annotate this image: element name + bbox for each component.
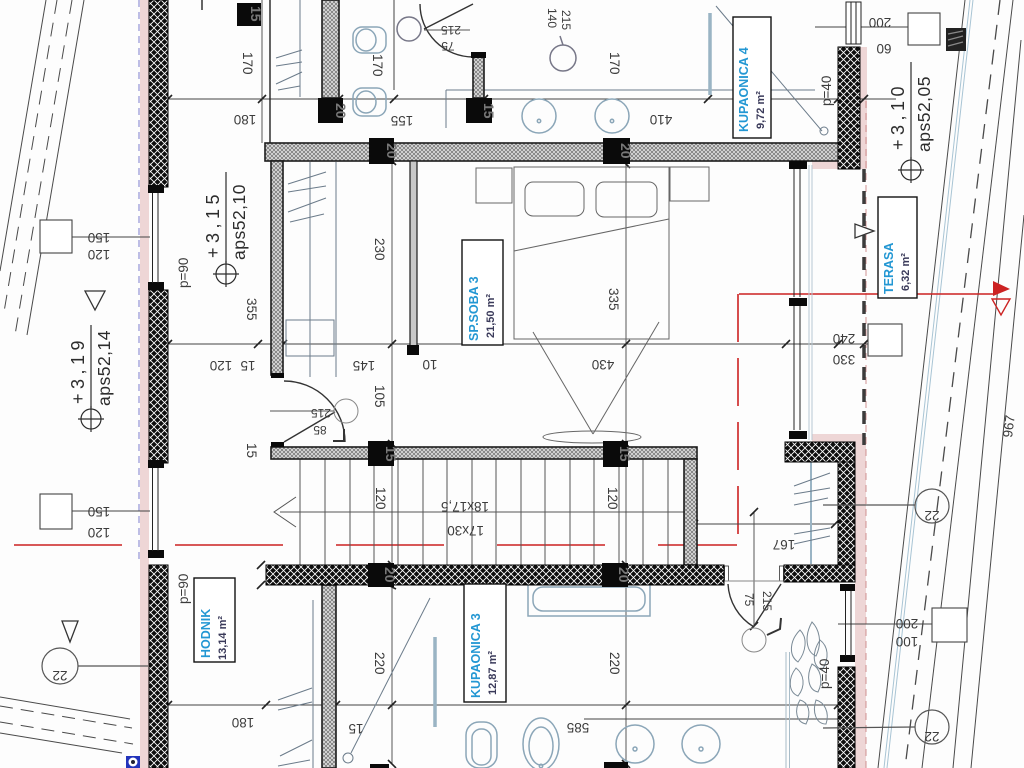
svg-text:15: 15	[383, 446, 399, 462]
svg-text:215: 215	[760, 591, 774, 611]
svg-text:KUPAONICA 3: KUPAONICA 3	[469, 613, 483, 698]
svg-text:410: 410	[650, 112, 673, 127]
svg-text:120: 120	[88, 525, 111, 540]
svg-text:SP.SOBA 3: SP.SOBA 3	[467, 276, 481, 341]
svg-text:335: 335	[606, 288, 621, 311]
svg-text:215: 215	[441, 23, 461, 37]
svg-text:18x17,5: 18x17,5	[441, 499, 489, 514]
svg-text:HODNIK: HODNIK	[199, 609, 213, 658]
svg-text:aps52,14: aps52,14	[94, 330, 114, 406]
svg-text:75: 75	[742, 593, 756, 607]
svg-text:15: 15	[481, 103, 497, 119]
svg-text:180: 180	[234, 112, 257, 127]
svg-text:12,87 m²: 12,87 m²	[487, 651, 499, 695]
svg-text:15: 15	[617, 446, 633, 462]
svg-text:15: 15	[348, 721, 363, 736]
svg-text:22: 22	[924, 508, 939, 523]
svg-text:105: 105	[372, 385, 387, 408]
svg-text:120: 120	[88, 247, 111, 262]
svg-text:+3,19: +3,19	[68, 336, 88, 404]
svg-text:100: 100	[896, 634, 919, 649]
svg-text:170: 170	[240, 52, 255, 75]
svg-text:20: 20	[382, 567, 398, 583]
svg-text:9,72 m²: 9,72 m²	[755, 91, 767, 129]
svg-text:85: 85	[313, 423, 327, 437]
svg-text:p=40: p=40	[817, 659, 832, 689]
svg-text:aps52,05: aps52,05	[914, 76, 934, 152]
svg-text:13,14 m²: 13,14 m²	[217, 616, 229, 660]
svg-text:150: 150	[88, 504, 111, 519]
svg-text:10: 10	[422, 357, 437, 372]
svg-text:170: 170	[370, 54, 385, 77]
svg-text:220: 220	[372, 652, 387, 675]
svg-text:200: 200	[896, 616, 919, 631]
svg-text:355: 355	[244, 298, 259, 321]
svg-text:21,50 m²: 21,50 m²	[485, 294, 497, 338]
svg-text:60: 60	[876, 41, 891, 56]
svg-text:20: 20	[333, 103, 349, 119]
svg-text:p=40: p=40	[819, 76, 834, 106]
svg-text:585: 585	[567, 720, 590, 735]
svg-text:330: 330	[833, 352, 856, 367]
svg-text:20: 20	[618, 143, 634, 159]
svg-text:230: 230	[372, 238, 387, 261]
svg-text:15: 15	[248, 6, 264, 22]
svg-text:aps52,10: aps52,10	[229, 184, 249, 260]
svg-text:6,32 m²: 6,32 m²	[900, 253, 912, 291]
svg-text:215: 215	[311, 406, 331, 420]
svg-text:p=90: p=90	[176, 574, 191, 604]
svg-text:430: 430	[592, 357, 615, 372]
svg-text:20: 20	[384, 143, 400, 159]
svg-text:170: 170	[607, 52, 622, 75]
svg-text:20: 20	[616, 567, 632, 583]
svg-text:150: 150	[88, 230, 111, 245]
svg-text:155: 155	[391, 113, 414, 128]
svg-text:180: 180	[232, 715, 255, 730]
svg-text:240: 240	[833, 331, 856, 346]
svg-text:75: 75	[441, 39, 455, 53]
svg-text:145: 145	[353, 358, 376, 373]
svg-text:140: 140	[545, 8, 559, 28]
svg-text:220: 220	[607, 652, 622, 675]
svg-text:p=90: p=90	[176, 258, 191, 288]
svg-text:KUPAONICA 4: KUPAONICA 4	[737, 47, 751, 132]
svg-text:120: 120	[210, 358, 233, 373]
svg-text:+3,10: +3,10	[888, 82, 908, 150]
svg-text:15: 15	[240, 358, 255, 373]
svg-text:22: 22	[924, 729, 939, 744]
svg-text:200: 200	[869, 15, 892, 30]
svg-text:215: 215	[559, 10, 573, 30]
svg-text:120: 120	[373, 487, 388, 510]
svg-text:+3,15: +3,15	[203, 190, 223, 258]
svg-text:TERASA: TERASA	[882, 243, 896, 294]
svg-text:15: 15	[244, 443, 259, 458]
svg-text:120: 120	[605, 487, 620, 510]
svg-text:22: 22	[52, 668, 67, 683]
svg-text:167: 167	[773, 537, 796, 552]
svg-text:967: 967	[1000, 414, 1018, 438]
svg-text:17x30: 17x30	[447, 523, 484, 538]
